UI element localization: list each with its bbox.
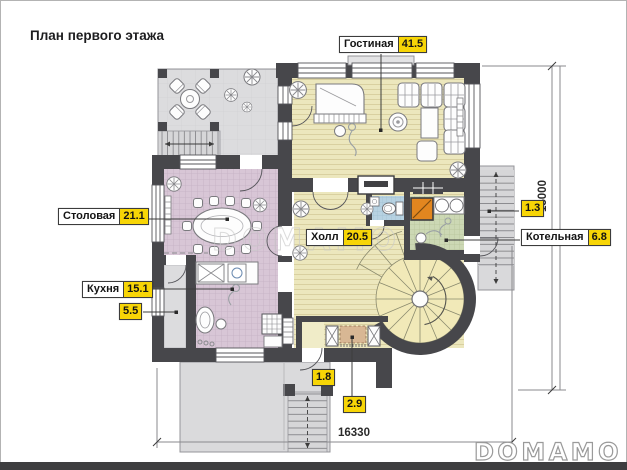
label-dining-room: Столовая21.1 bbox=[58, 208, 149, 225]
fireplace bbox=[358, 176, 394, 194]
page: План первого этажа bbox=[0, 0, 627, 470]
living-room-area: 41.5 bbox=[399, 36, 427, 53]
bottom-bar bbox=[0, 462, 627, 470]
label-vestibule-area: 1.8 bbox=[312, 369, 335, 386]
hall-area: 20.5 bbox=[344, 229, 372, 246]
vestibule-floor bbox=[302, 322, 324, 348]
label-entry-landing-area: 1.3 bbox=[521, 200, 544, 217]
label-kitchen: Кухня15.1 bbox=[82, 281, 153, 298]
dimension-width-text: 16330 bbox=[338, 427, 370, 439]
terrace-top-left bbox=[158, 69, 278, 157]
entry-stairs-right bbox=[478, 166, 514, 290]
vestibule-area: 1.8 bbox=[312, 369, 335, 386]
entry-landing-area: 1.3 bbox=[521, 200, 544, 217]
kitchen-name: Кухня bbox=[82, 281, 124, 298]
label-living-room: Гостиная41.5 bbox=[339, 36, 427, 53]
porch-bottom bbox=[180, 362, 333, 452]
kitchen-area: 15.1 bbox=[124, 281, 152, 298]
hall-name: Холл bbox=[306, 229, 344, 246]
label-hall: Холл20.5 bbox=[306, 229, 372, 246]
dining-room-area: 21.1 bbox=[120, 208, 148, 225]
wall-vent-grid bbox=[413, 182, 443, 194]
porch-area: 2.9 bbox=[343, 396, 366, 413]
label-boiler-room: Котельная6.8 bbox=[521, 229, 611, 246]
pantry-area: 5.5 bbox=[119, 303, 142, 320]
label-porch-area: 2.9 bbox=[343, 396, 366, 413]
boiler-room-area: 6.8 bbox=[589, 229, 611, 246]
pantry-floor bbox=[164, 265, 186, 348]
boiler-room-name: Котельная bbox=[521, 229, 589, 246]
duct-shaft bbox=[283, 318, 293, 344]
living-room-name: Гостиная bbox=[339, 36, 399, 53]
dining-room-name: Столовая bbox=[58, 208, 120, 225]
label-pantry-area: 5.5 bbox=[119, 303, 142, 320]
